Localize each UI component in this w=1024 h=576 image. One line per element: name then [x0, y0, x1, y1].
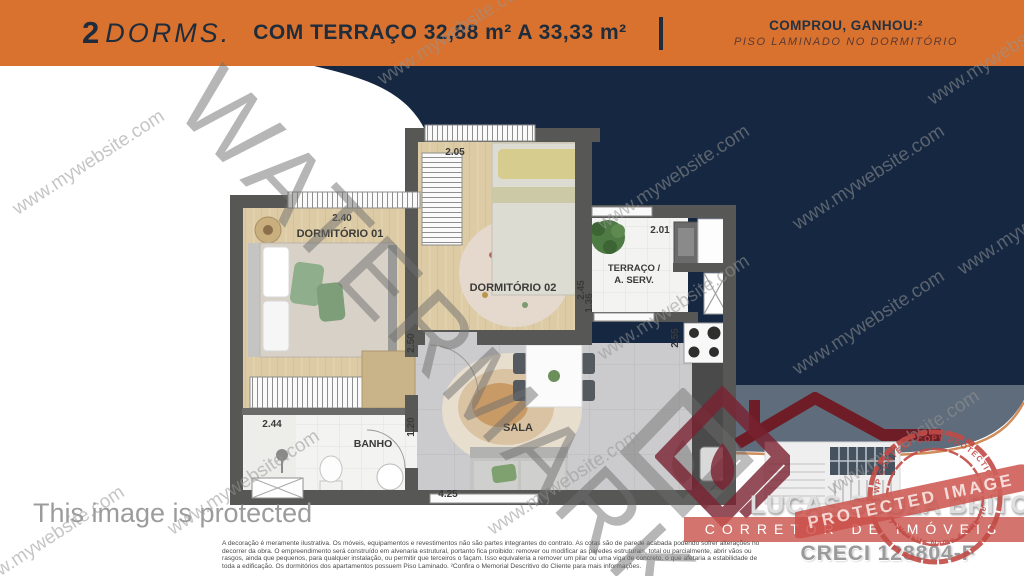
plant-leaf: [611, 224, 625, 238]
unit-type: DORMS.: [105, 18, 231, 49]
window-dorm2: [425, 125, 535, 141]
wardrobe-dorm2: [422, 153, 462, 245]
wall: [405, 128, 418, 357]
wardrobe-dorm1: [250, 377, 362, 408]
unit-count: 2: [82, 15, 99, 51]
tank-basin: [678, 228, 694, 256]
disclaimer-text: A decoração é meramente ilustrativa. Os …: [222, 540, 784, 570]
pillow: [263, 301, 289, 351]
disclaimer-line: decorrer da obra. O empreendimento será …: [222, 548, 784, 556]
window-dorm1: [288, 192, 420, 208]
dining-chair: [581, 380, 595, 401]
green-cushion: [316, 282, 346, 323]
terraco-depth: 1.36: [584, 293, 595, 313]
protected-label: This image is protected: [33, 498, 312, 529]
washer-counter: [698, 219, 724, 264]
shower-head: [276, 449, 288, 461]
burner: [709, 347, 719, 357]
lamp-center: [263, 225, 273, 235]
terraco-width: 2.01: [650, 225, 670, 236]
pillow-single: [498, 149, 580, 179]
wall-door-gap: [425, 332, 477, 345]
banho-depth: 1.20: [406, 417, 417, 437]
plant-leaf: [603, 240, 617, 254]
disclaimer-line: toda a edificação. Os dormitórios dos ap…: [222, 563, 784, 571]
banho-label: BANHO: [354, 438, 393, 450]
bed-double-headboard: [248, 243, 260, 357]
sala-width: 4.25: [438, 489, 458, 500]
burner: [708, 327, 721, 340]
banho-sink: [377, 464, 403, 490]
header-promo: COMPROU, GANHOU:² PISO LAMINADO NO DORMI…: [678, 0, 1014, 66]
dining-chair: [513, 353, 527, 374]
burner: [689, 328, 699, 338]
table-plant: [548, 370, 560, 382]
wall: [230, 195, 243, 505]
dorm1-depth: 2.50: [406, 333, 417, 353]
window-terraco: [592, 207, 652, 216]
toilet: [320, 456, 342, 482]
marketing-image: 2 DORMS. COM TERRAÇO 32,88 m² A 33,33 m²…: [0, 0, 1024, 576]
wall: [242, 408, 405, 415]
terraco-label2: A. SERV.: [614, 275, 654, 286]
sofa-cushion: [521, 461, 565, 491]
wall: [673, 263, 736, 272]
burner: [689, 347, 700, 358]
header-divider: [659, 17, 663, 50]
plant-leaf: [591, 222, 605, 236]
disclaimer-line: rasgos, ainda que pequenos, para qualque…: [222, 555, 784, 563]
promo-title: COMPROU, GANHOU:²: [769, 18, 923, 33]
protection-stamp: WP CONTENT COPY PROTECTION PLUGIN My Web…: [795, 424, 1024, 576]
bed-bench: [388, 245, 397, 355]
dorm1-width: 2.40: [332, 213, 352, 224]
dining-chair: [581, 353, 595, 374]
pillow: [263, 247, 289, 297]
stamp-band-text: PROTECTED IMAGE: [806, 470, 1016, 532]
dorm2-width: 2.05: [445, 147, 465, 158]
dorm2-label: DORMITÓRIO 02: [470, 281, 557, 294]
dining-chair: [513, 380, 527, 401]
disclaimer-line: A decoração é meramente ilustrativa. Os …: [222, 540, 784, 548]
dorm1-label: DORMITÓRIO 01: [297, 227, 384, 240]
promo-subtitle: PISO LAMINADO NO DORMITÓRIO: [734, 36, 958, 48]
sofa-green-pillow: [491, 463, 517, 483]
terraco-label1: TERRAÇO /: [608, 263, 661, 274]
header-area-range: COM TERRAÇO 32,88 m² A 33,33 m²: [253, 21, 626, 45]
slider-door-terraco: [594, 313, 654, 321]
sala-label: SALA: [503, 422, 533, 434]
cozinha-depth: 2.55: [670, 328, 681, 348]
rug-dot: [522, 302, 528, 308]
blanket-single: [492, 187, 588, 203]
header-title: 2 DORMS. COM TERRAÇO 32,88 m² A 33,33 m²: [82, 0, 627, 66]
banho-width: 2.44: [262, 419, 282, 430]
sofa-back: [470, 447, 568, 458]
